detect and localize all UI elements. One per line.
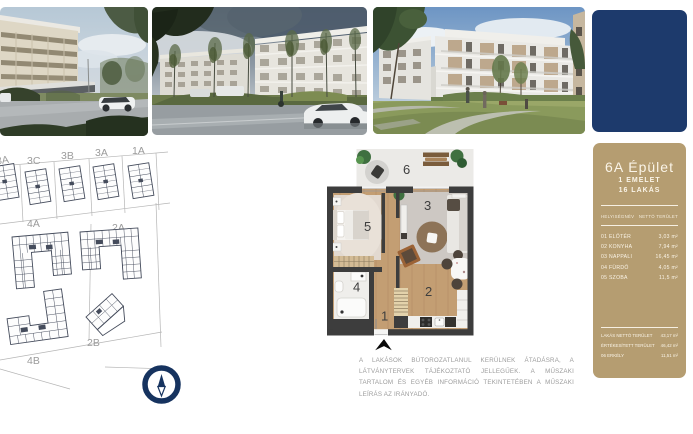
svg-text:6: 6 [403, 162, 410, 177]
svg-text:4B: 4B [27, 355, 40, 367]
svg-text:3B: 3B [61, 150, 74, 162]
svg-text:4A: 4A [27, 218, 40, 230]
svg-text:1: 1 [381, 309, 388, 324]
svg-text:1A: 1A [132, 145, 145, 157]
svg-text:2: 2 [425, 284, 432, 299]
svg-text:2B: 2B [87, 337, 100, 349]
svg-text:5: 5 [364, 219, 371, 234]
svg-text:4: 4 [353, 280, 360, 295]
svg-text:3C: 3C [27, 155, 41, 167]
svg-text:3A: 3A [95, 147, 108, 159]
svg-text:3: 3 [424, 198, 431, 213]
